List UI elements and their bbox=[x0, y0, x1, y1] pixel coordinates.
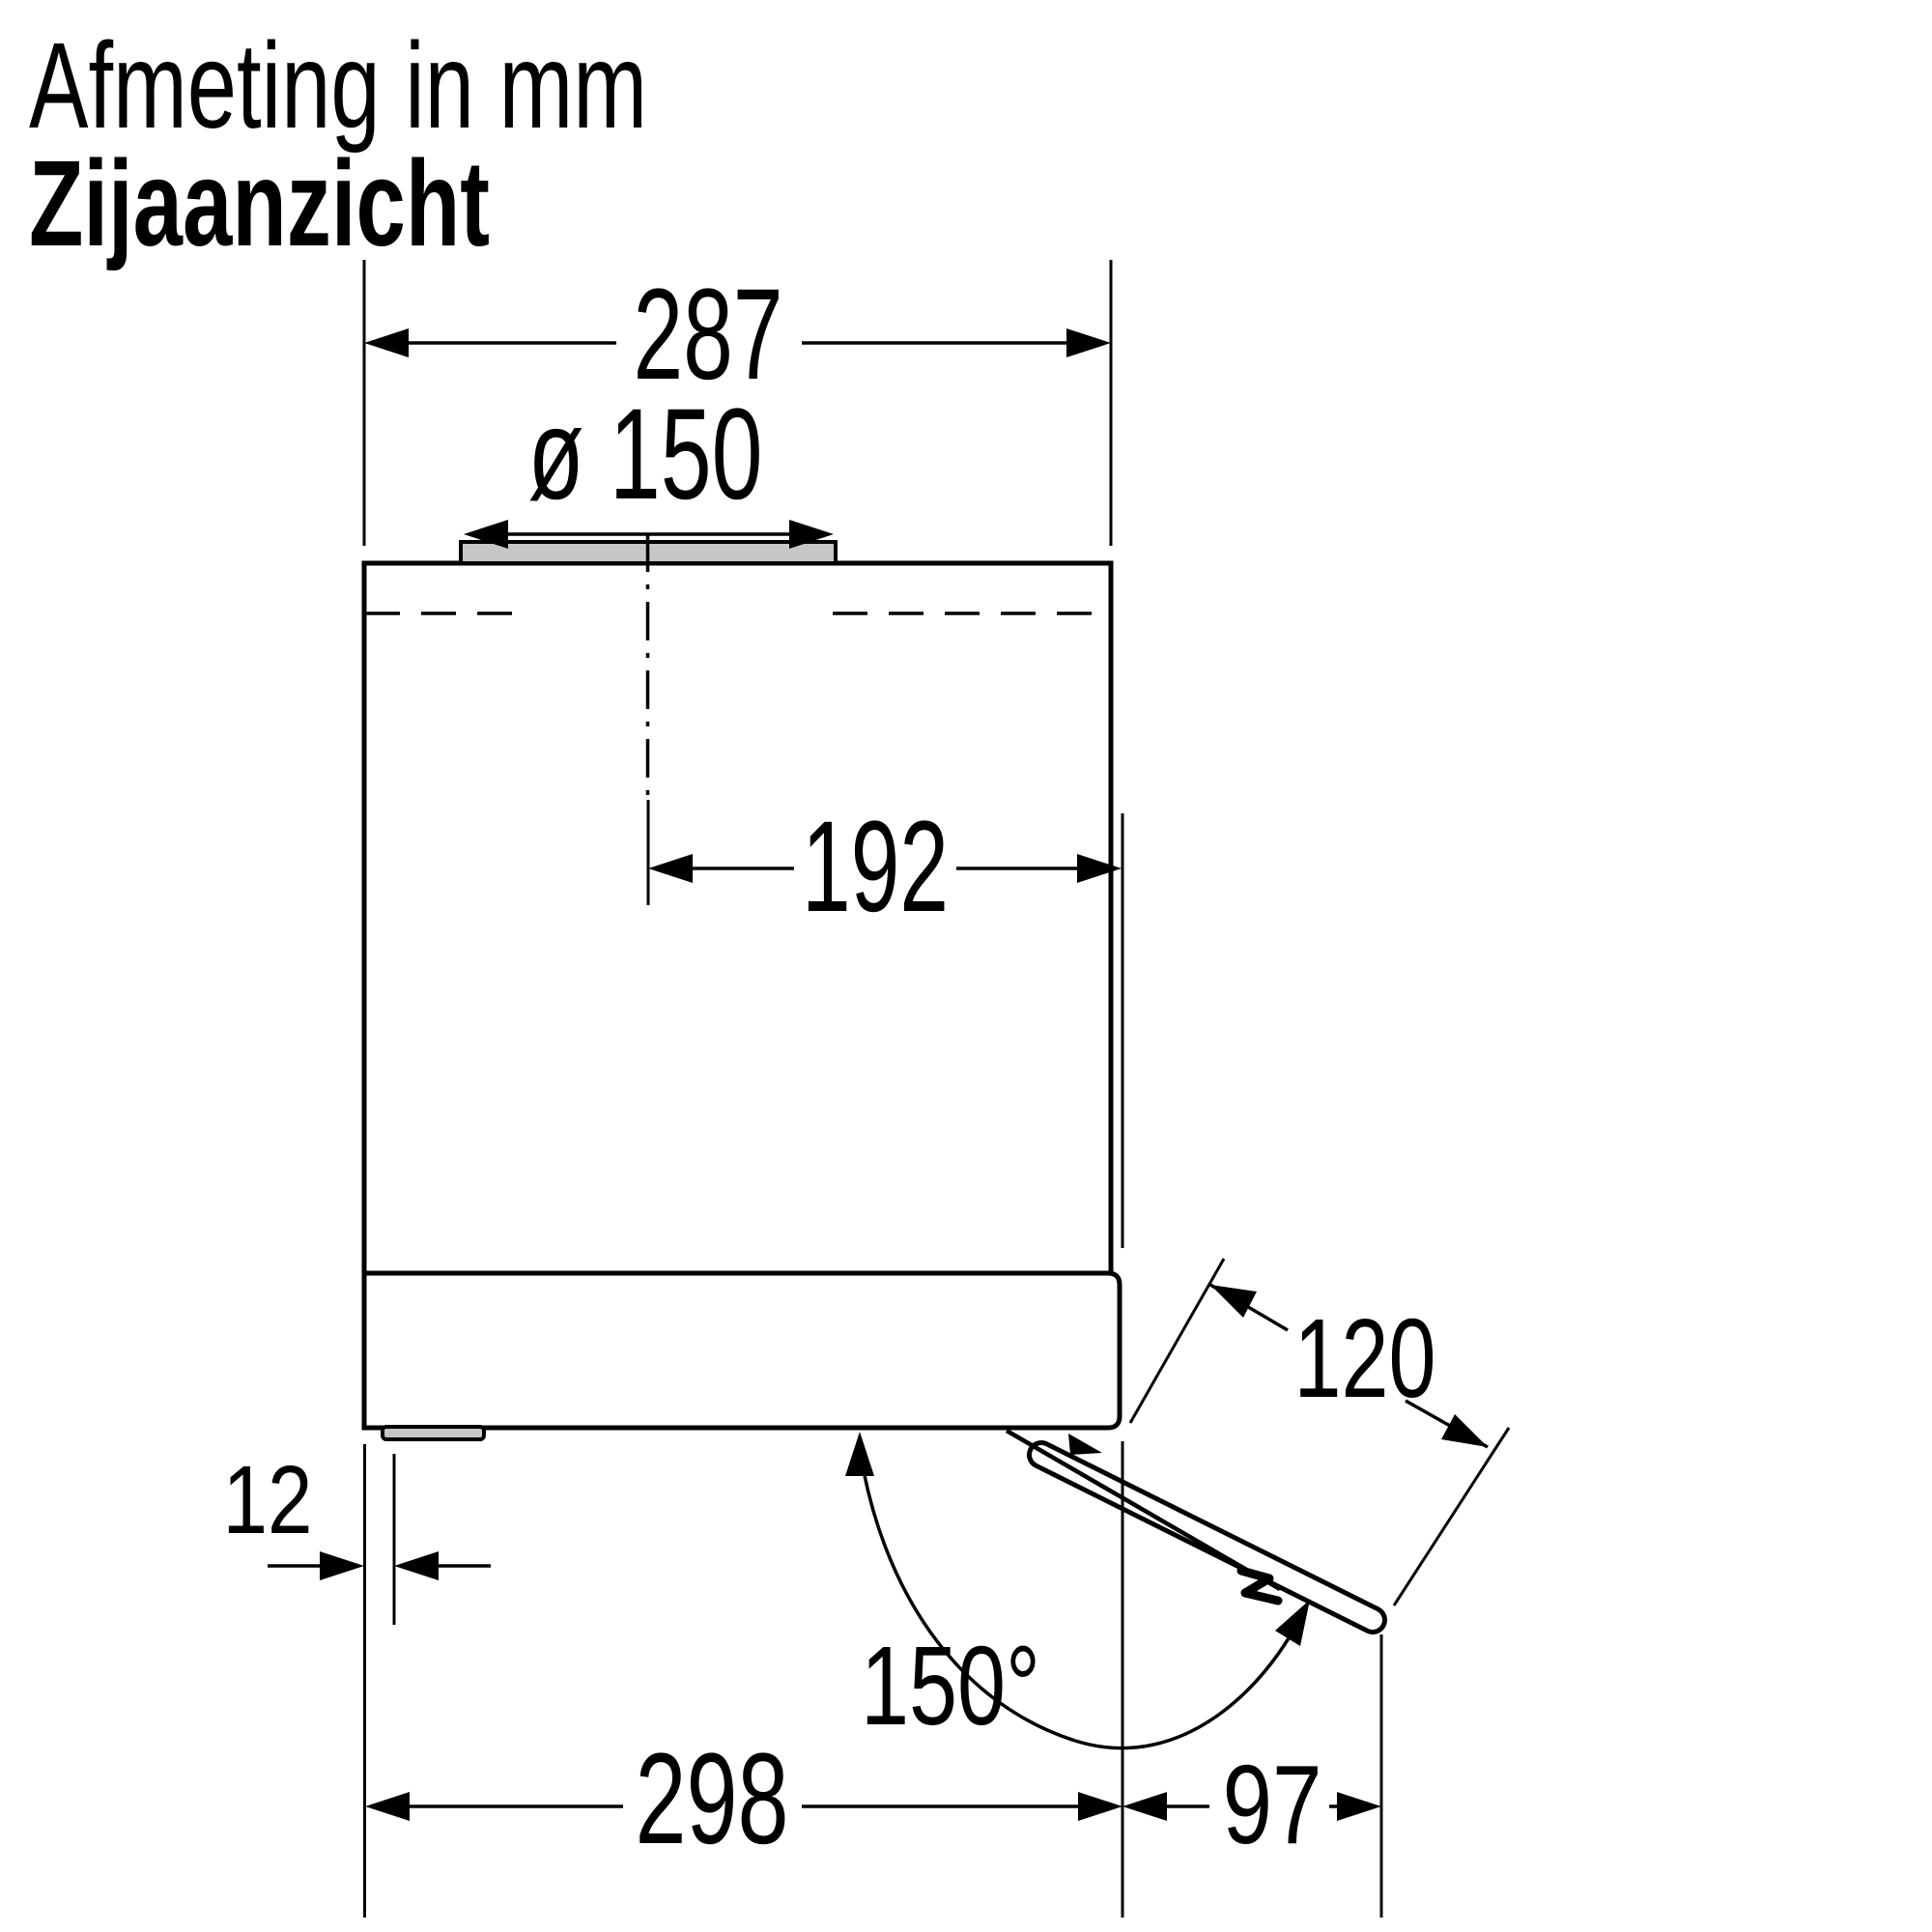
dim-label-flap-depth: 120 bbox=[1294, 1295, 1436, 1421]
mounting-foot bbox=[383, 1427, 484, 1439]
dim-label-foot-inset: 12 bbox=[223, 1446, 313, 1554]
flap-hinge-bracket bbox=[1068, 1434, 1102, 1455]
cabinet-body bbox=[364, 563, 1111, 1273]
dim-label-opening-angle: 150° bbox=[861, 1623, 1040, 1748]
drawing-title: Afmeting in mm bbox=[29, 17, 647, 154]
dim-label-flap-projection: 97 bbox=[1223, 1742, 1322, 1867]
flap-top-edge bbox=[1007, 1431, 1280, 1589]
dimension-drawing-page: Afmeting in mm Zijaanzicht 287 ø 150 bbox=[0, 0, 1932, 1932]
arrow-left-icon bbox=[364, 328, 409, 357]
dim-label-duct-diameter: ø 150 bbox=[528, 383, 763, 526]
arrow-right-icon bbox=[320, 1551, 364, 1580]
dim-flap-depth: 120 bbox=[1130, 1259, 1509, 1605]
dim-label-duct-offset: 192 bbox=[802, 795, 949, 939]
arrow-downright-icon bbox=[1441, 1414, 1488, 1447]
dim-foot-inset: 12 bbox=[223, 1446, 492, 1625]
arrow-right-icon bbox=[1337, 1792, 1381, 1821]
arrow-right-icon bbox=[1066, 328, 1111, 357]
dim-bottom-depth: 298 bbox=[365, 1727, 1122, 1871]
arrow-upright-icon bbox=[1275, 1600, 1310, 1646]
arrow-left-icon bbox=[365, 1792, 410, 1821]
arrow-left-icon bbox=[1122, 1792, 1167, 1821]
pull-out-flap bbox=[1007, 1431, 1373, 1620]
arrow-right-icon bbox=[1078, 1792, 1122, 1821]
drawing-subtitle: Zijaanzicht bbox=[29, 135, 490, 271]
dim-label-bottom-depth: 298 bbox=[636, 1727, 789, 1871]
arrow-up-icon bbox=[845, 1432, 874, 1476]
dim-flap-projection: 97 bbox=[1122, 1742, 1381, 1867]
dim-duct-diameter: ø 150 bbox=[464, 383, 834, 549]
arrow-upleft-icon bbox=[1210, 1285, 1257, 1318]
bottom-front-panel bbox=[364, 1273, 1120, 1428]
arrow-left-icon bbox=[394, 1551, 439, 1580]
side-view-diagram: Afmeting in mm Zijaanzicht 287 ø 150 bbox=[0, 0, 1932, 1932]
